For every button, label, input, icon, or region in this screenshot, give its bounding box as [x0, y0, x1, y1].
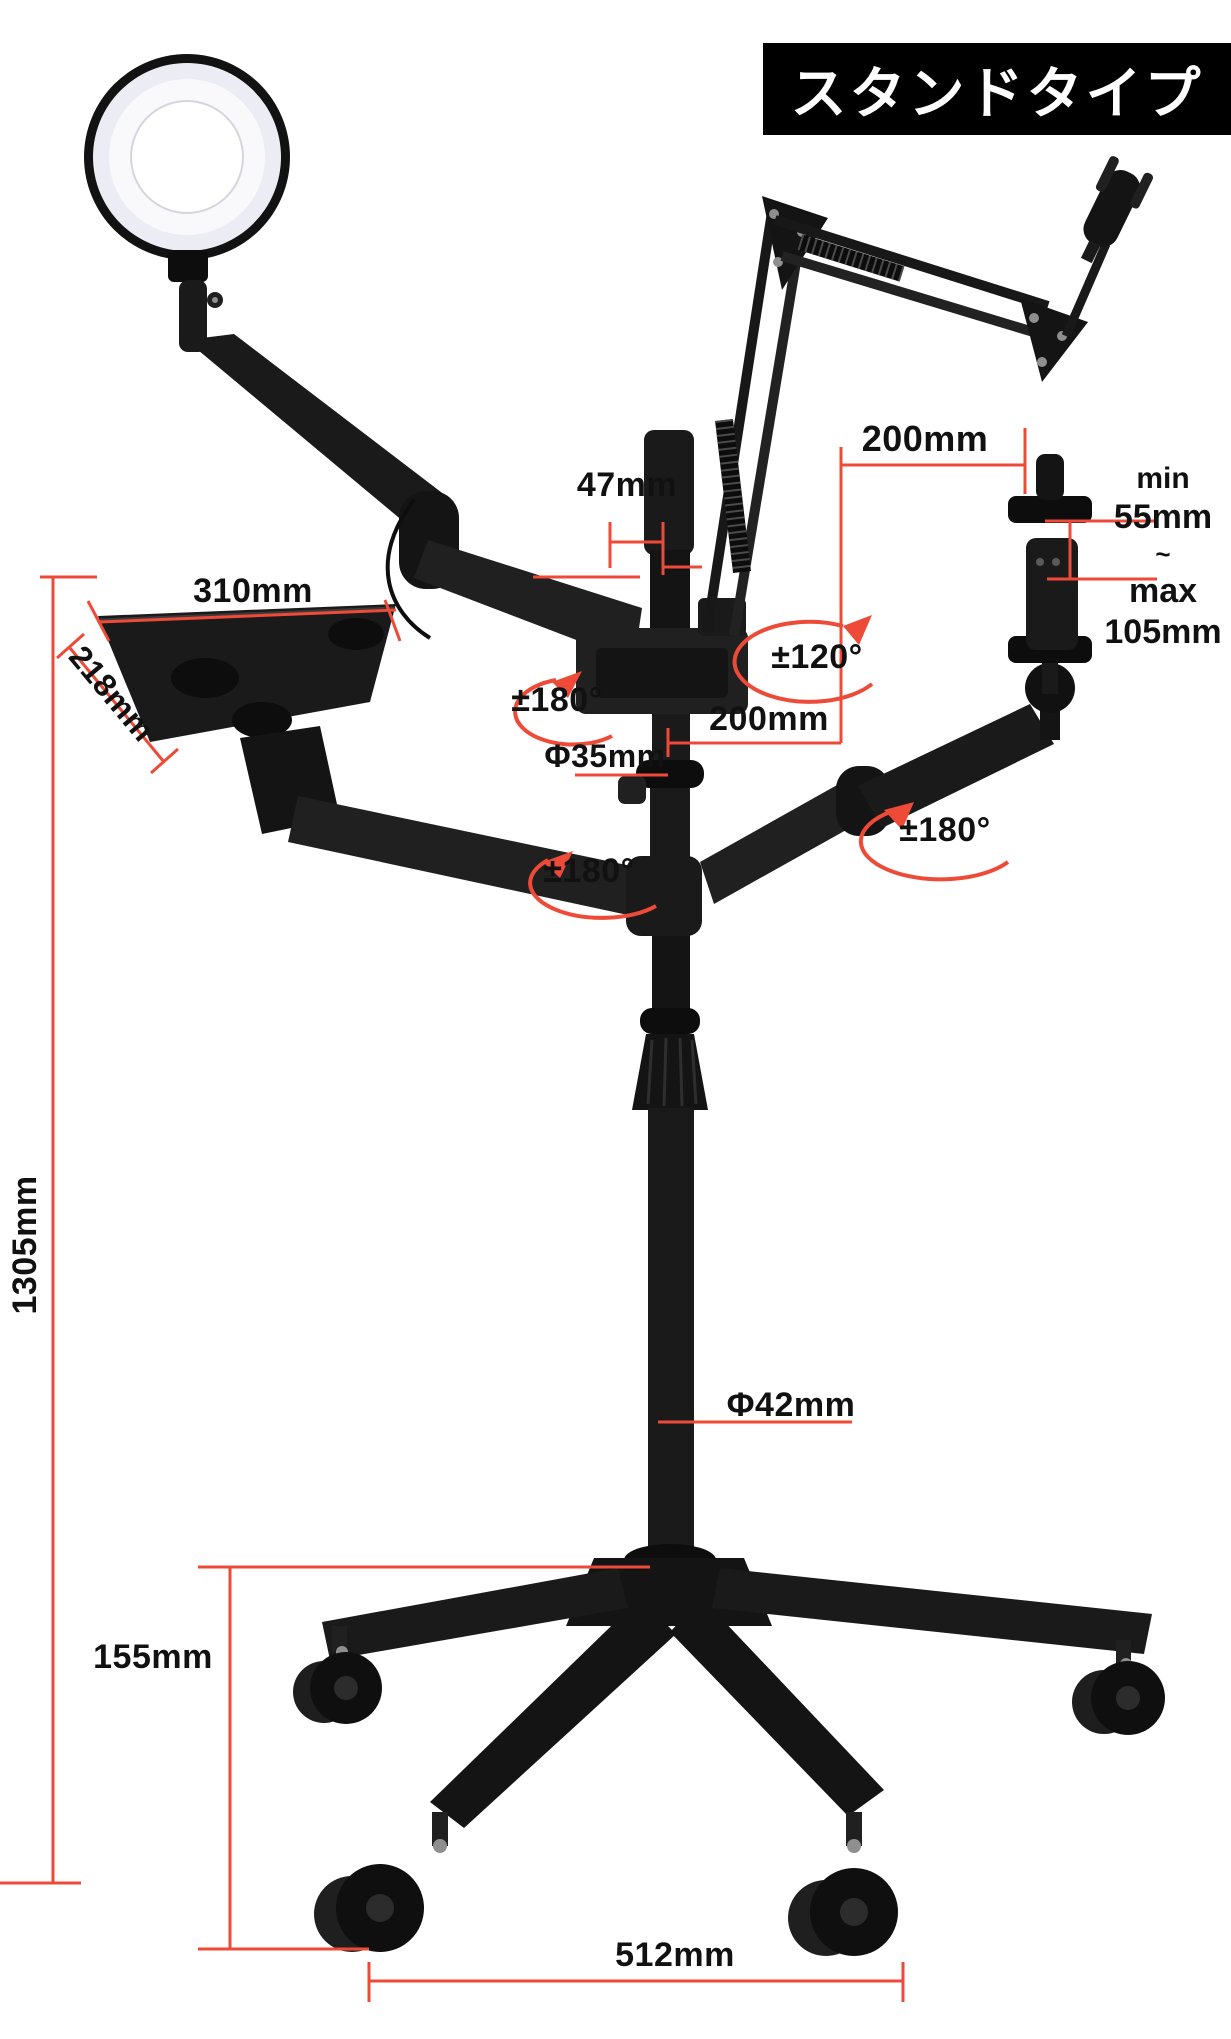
label-lower-pole-diameter: Φ42mm — [720, 1388, 862, 1424]
label-upper-pole-diameter: Φ35mm — [540, 740, 670, 774]
label-base-width: 512mm — [600, 1938, 750, 1974]
label-phone-clamp-range: min 55mm ~ max 105mm — [1088, 462, 1231, 652]
stand-illustration — [0, 0, 1231, 2039]
ring-light-center — [131, 101, 243, 213]
label-phone-arm-swivel: ±180° — [883, 813, 1007, 849]
base-leg-back-right — [712, 1568, 1152, 1654]
label-arm-reach: 200mm — [695, 702, 843, 738]
label-max: max — [1129, 572, 1197, 611]
caster-back-right — [1072, 1640, 1165, 1735]
label-tablet-width: 310mm — [185, 574, 321, 610]
phone-clamp-upper-jaw — [1008, 496, 1092, 523]
label-tablet-arm-swivel: ±180° — [527, 854, 651, 890]
tablet-grip — [328, 618, 384, 650]
label-max-value: 105mm — [1104, 613, 1221, 652]
mic-holder — [1065, 155, 1155, 271]
label-base-height: 155mm — [85, 1640, 221, 1676]
tablet-grip — [171, 658, 239, 698]
caster-front-right — [788, 1812, 898, 1956]
label-min: min — [1136, 462, 1189, 496]
label-min-value: 55mm — [1114, 498, 1212, 537]
label-tilde: ~ — [1155, 539, 1170, 570]
product-spec-image: スタンドタイプ 200mm min 55mm ~ max 105mm 47mm … — [0, 0, 1231, 2039]
base — [293, 1544, 1165, 1956]
label-pole-height: 1305mm — [8, 1175, 44, 1314]
caster-front-left — [314, 1812, 448, 1952]
label-top-arm-swivel: ±180° — [495, 683, 619, 719]
dim-boom-reach — [841, 428, 1025, 743]
ring-light — [84, 54, 290, 352]
base-leg-back-left — [322, 1568, 628, 1660]
pole-side-knob — [618, 776, 646, 804]
label-pole-top-diameter: 47mm — [565, 468, 689, 504]
phone-holder — [1008, 454, 1092, 740]
label-boom-reach: 200mm — [845, 420, 1005, 458]
phone-clamp-knob — [1036, 454, 1064, 500]
main-pole — [618, 430, 708, 1570]
base-leg-front-right — [670, 1598, 884, 1816]
title-badge: スタンドタイプ — [763, 43, 1231, 135]
label-boom-swivel: ±120° — [755, 640, 879, 676]
